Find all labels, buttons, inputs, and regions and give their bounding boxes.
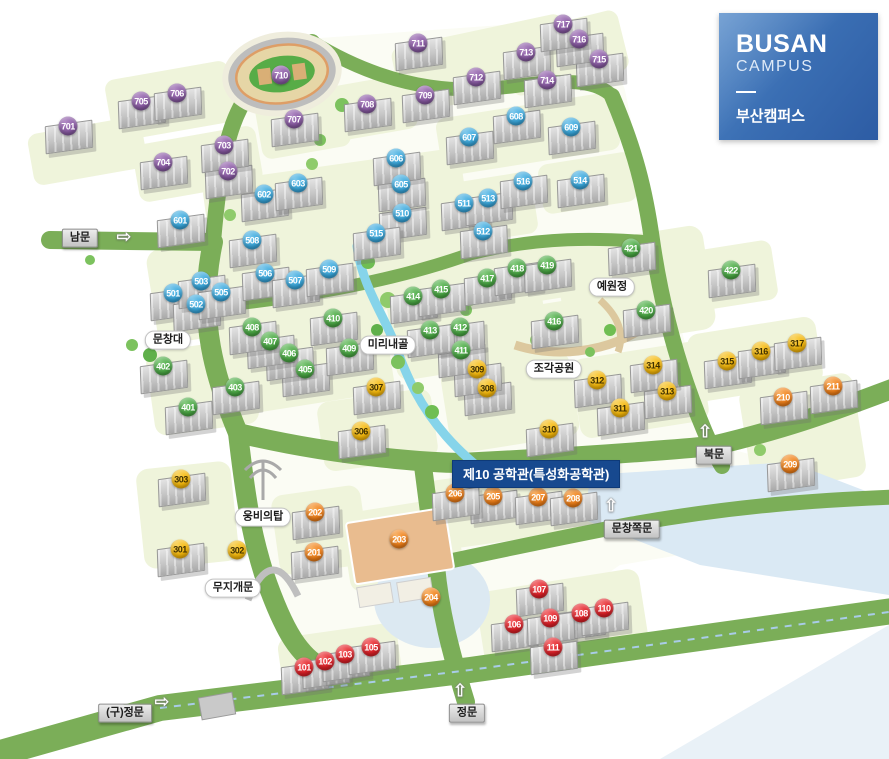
building-marker-409[interactable]: 409 xyxy=(340,339,359,358)
logo-korean-title: 부산캠퍼스 xyxy=(736,105,878,126)
building-marker-210[interactable]: 210 xyxy=(774,388,793,407)
building-marker-418[interactable]: 418 xyxy=(508,259,527,278)
building-marker-403[interactable]: 403 xyxy=(226,378,245,397)
building-marker-209[interactable]: 209 xyxy=(781,455,800,474)
place-label-ungbi-tower: 웅비의탑 xyxy=(235,508,291,527)
building-marker-715[interactable]: 715 xyxy=(590,50,609,69)
building-marker-106[interactable]: 106 xyxy=(505,615,524,634)
building-marker-602[interactable]: 602 xyxy=(255,185,274,204)
building-marker-419[interactable]: 419 xyxy=(538,256,557,275)
building-marker-410[interactable]: 410 xyxy=(324,309,343,328)
gate-label-north-gate: 북문 xyxy=(696,446,732,465)
building-marker-411[interactable]: 411 xyxy=(452,341,471,360)
place-label-rainbow-gate: 무지개문 xyxy=(205,579,261,598)
logo-divider xyxy=(736,91,756,93)
selected-building-tooltip: 제10 공학관(특성화공학관) xyxy=(452,460,620,488)
building-marker-603[interactable]: 603 xyxy=(289,174,308,193)
building-marker-308[interactable]: 308 xyxy=(478,379,497,398)
building-marker-506[interactable]: 506 xyxy=(256,264,275,283)
building-marker-601[interactable]: 601 xyxy=(171,211,190,230)
building-marker-706[interactable]: 706 xyxy=(168,84,187,103)
building-marker-313[interactable]: 313 xyxy=(658,382,677,401)
building-marker-203[interactable]: 203 xyxy=(390,530,409,549)
building-marker-310[interactable]: 310 xyxy=(540,420,559,439)
building-marker-710[interactable]: 710 xyxy=(272,66,291,85)
gate-label-munchang-side-gate: 문창쪽문 xyxy=(604,520,660,539)
place-label-mirinaegol: 미리내골 xyxy=(360,336,416,355)
building-marker-701[interactable]: 701 xyxy=(59,117,78,136)
building-marker-413[interactable]: 413 xyxy=(421,321,440,340)
campus-map: 남문⇨북문⇧정문⇧(구)정문⇨문창쪽문⇧문창대미리내골예원정조각공원웅비의탑무지… xyxy=(0,0,889,759)
building-marker-717[interactable]: 717 xyxy=(554,15,573,34)
building-marker-201[interactable]: 201 xyxy=(305,543,324,562)
building-marker-311[interactable]: 311 xyxy=(611,399,630,418)
building-marker-516[interactable]: 516 xyxy=(514,172,533,191)
building-marker-204[interactable]: 204 xyxy=(422,588,441,607)
building-marker-202[interactable]: 202 xyxy=(306,503,325,522)
building-marker-412[interactable]: 412 xyxy=(451,318,470,337)
building-marker-101[interactable]: 101 xyxy=(295,658,314,677)
building-marker-314[interactable]: 314 xyxy=(644,356,663,375)
building-marker-109[interactable]: 109 xyxy=(541,609,560,628)
building-marker-110[interactable]: 110 xyxy=(595,599,614,618)
building-marker-511[interactable]: 511 xyxy=(455,194,474,213)
building-marker-509[interactable]: 509 xyxy=(320,260,339,279)
building-marker-503[interactable]: 503 xyxy=(192,272,211,291)
building-marker-515[interactable]: 515 xyxy=(367,224,386,243)
building-marker-609[interactable]: 609 xyxy=(562,118,581,137)
building-marker-716[interactable]: 716 xyxy=(570,30,589,49)
building-marker-316[interactable]: 316 xyxy=(752,342,771,361)
logo-title: BUSAN xyxy=(736,32,878,57)
building-marker-704[interactable]: 704 xyxy=(154,153,173,172)
building-marker-712[interactable]: 712 xyxy=(467,68,486,87)
building-marker-207[interactable]: 207 xyxy=(529,488,548,507)
building-marker-105[interactable]: 105 xyxy=(362,638,381,657)
building-marker-107[interactable]: 107 xyxy=(530,580,549,599)
building-marker-312[interactable]: 312 xyxy=(588,371,607,390)
busan-campus-logo: BUSAN CAMPUS 부산캠퍼스 xyxy=(719,13,878,140)
building-marker-422[interactable]: 422 xyxy=(722,261,741,280)
building-marker-103[interactable]: 103 xyxy=(336,645,355,664)
building-marker-507[interactable]: 507 xyxy=(286,271,305,290)
building-marker-303[interactable]: 303 xyxy=(172,470,191,489)
place-label-munchangdae: 문창대 xyxy=(145,331,191,350)
building-marker-307[interactable]: 307 xyxy=(367,378,386,397)
building-marker-607[interactable]: 607 xyxy=(460,128,479,147)
gate-label-old-main-gate: (구)정문 xyxy=(98,704,152,723)
building-marker-301[interactable]: 301 xyxy=(171,540,190,559)
building-marker-402[interactable]: 402 xyxy=(154,357,173,376)
building-marker-705[interactable]: 705 xyxy=(132,92,151,111)
building-marker-501[interactable]: 501 xyxy=(164,284,183,303)
building-marker-513[interactable]: 513 xyxy=(479,189,498,208)
building-marker-605[interactable]: 605 xyxy=(392,175,411,194)
building-marker-407[interactable]: 407 xyxy=(261,332,280,351)
building-marker-713[interactable]: 713 xyxy=(517,43,536,62)
building-marker-711[interactable]: 711 xyxy=(409,34,428,53)
building-marker-211[interactable]: 211 xyxy=(824,377,843,396)
building-marker-416[interactable]: 416 xyxy=(545,312,564,331)
building-marker-510[interactable]: 510 xyxy=(393,204,412,223)
building-marker-309[interactable]: 309 xyxy=(468,360,487,379)
building-marker-102[interactable]: 102 xyxy=(316,652,335,671)
building-marker-514[interactable]: 514 xyxy=(571,171,590,190)
building-marker-405[interactable]: 405 xyxy=(296,360,315,379)
building-marker-315[interactable]: 315 xyxy=(718,352,737,371)
building-marker-508[interactable]: 508 xyxy=(243,231,262,250)
place-label-sculpture-park: 조각공원 xyxy=(526,360,582,379)
building-marker-111[interactable]: 111 xyxy=(544,638,563,657)
building-marker-505[interactable]: 505 xyxy=(212,283,231,302)
building-marker-709[interactable]: 709 xyxy=(416,86,435,105)
old-main-gate-direction-arrow-icon: ⇨ xyxy=(154,692,169,713)
main-gate-direction-arrow-icon: ⇧ xyxy=(452,681,467,702)
building-marker-408[interactable]: 408 xyxy=(243,318,262,337)
building-marker-208[interactable]: 208 xyxy=(564,489,583,508)
building-marker-421[interactable]: 421 xyxy=(622,239,641,258)
logo-subtitle: CAMPUS xyxy=(736,57,878,78)
building-marker-205[interactable]: 205 xyxy=(484,487,503,506)
building-marker-502[interactable]: 502 xyxy=(187,295,206,314)
building-marker-708[interactable]: 708 xyxy=(358,95,377,114)
building-marker-317[interactable]: 317 xyxy=(788,334,807,353)
building-marker-417[interactable]: 417 xyxy=(478,269,497,288)
gate-label-south-gate: 남문 xyxy=(62,229,98,248)
building-marker-420[interactable]: 420 xyxy=(637,301,656,320)
munchang-side-gate-direction-arrow-icon: ⇧ xyxy=(603,496,618,517)
building-marker-306[interactable]: 306 xyxy=(352,422,371,441)
building-marker-406[interactable]: 406 xyxy=(280,344,299,363)
building-marker-302[interactable]: 302 xyxy=(228,541,247,560)
north-gate-direction-arrow-icon: ⇧ xyxy=(697,422,712,443)
south-gate-direction-arrow-icon: ⇨ xyxy=(116,227,131,248)
building-marker-714[interactable]: 714 xyxy=(538,71,557,90)
building-marker-414[interactable]: 414 xyxy=(404,287,423,306)
building-marker-707[interactable]: 707 xyxy=(285,110,304,129)
building-marker-702[interactable]: 702 xyxy=(219,162,238,181)
building-marker-703[interactable]: 703 xyxy=(215,136,234,155)
place-label-yewonjeong: 예원정 xyxy=(589,278,635,297)
building-marker-401[interactable]: 401 xyxy=(179,398,198,417)
building-marker-415[interactable]: 415 xyxy=(432,280,451,299)
building-marker-108[interactable]: 108 xyxy=(572,604,591,623)
gate-label-main-gate: 정문 xyxy=(449,704,485,723)
building-marker-606[interactable]: 606 xyxy=(387,149,406,168)
building-marker-608[interactable]: 608 xyxy=(507,107,526,126)
building-marker-512[interactable]: 512 xyxy=(474,222,493,241)
